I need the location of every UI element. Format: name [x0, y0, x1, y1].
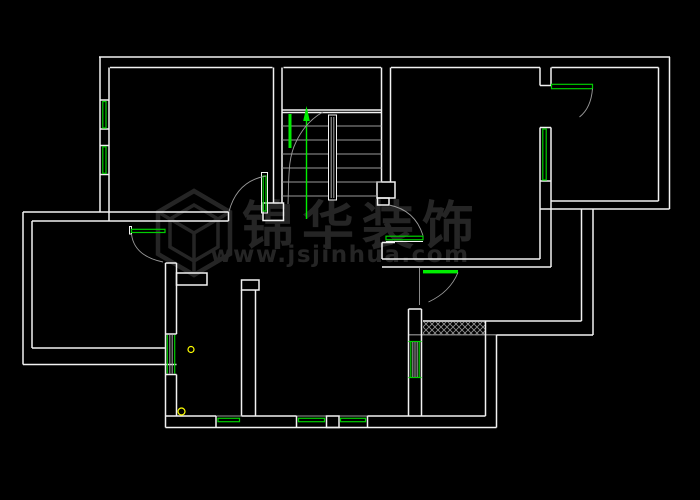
floorplan-drawing: 锦华装饰 www.jsjinhua.com — [0, 0, 700, 500]
window-bottom-1 — [218, 418, 240, 421]
porch-corner-wall — [486, 321, 497, 428]
staircase — [274, 68, 396, 220]
door-swing-arc — [580, 89, 593, 117]
bathroom-right-wall — [242, 280, 260, 416]
window-left-lower — [103, 147, 106, 174]
door-leaf — [552, 84, 593, 88]
stair-center-rail — [329, 115, 337, 200]
floor-drain-icon — [188, 347, 194, 353]
window-divider — [543, 129, 546, 180]
room-b-c-dividing-wall — [540, 68, 551, 268]
entry-wall — [409, 268, 459, 416]
door-leaf — [423, 270, 458, 273]
window-left-upper — [103, 102, 106, 129]
top-exterior-wall — [99, 57, 670, 68]
window-bottom-2 — [299, 418, 325, 421]
window-pillar — [327, 416, 340, 428]
top-right-room — [540, 57, 670, 209]
stair-green-bar — [289, 114, 292, 148]
floor-drain-icon — [178, 408, 185, 415]
hatched-threshold — [423, 322, 486, 335]
left-wall-with-windows — [100, 57, 109, 221]
watermark: 锦华装饰 www.jsjinhua.com — [158, 191, 482, 275]
bottom-exterior-wall — [166, 416, 497, 428]
cad-floorplan-viewport: 锦华装饰 www.jsjinhua.com — [0, 0, 700, 500]
door-swing-arc — [429, 273, 459, 303]
bathroom-left-wall — [166, 263, 208, 428]
lower-left-room-walls — [23, 212, 229, 365]
watermark-url-text: www.jsjinhua.com — [210, 242, 469, 268]
window-bottom-3 — [341, 418, 366, 421]
